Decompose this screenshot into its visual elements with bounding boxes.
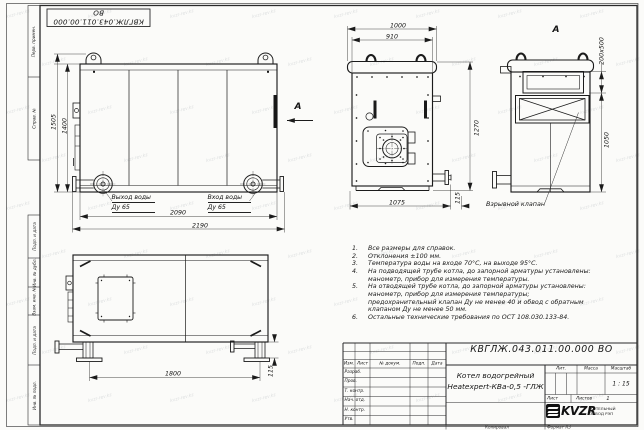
frame-label-podp-data-2: Подп. и дата <box>28 315 40 365</box>
explosion-valve <box>516 96 590 124</box>
rear-pipe-stub <box>493 172 512 189</box>
water-outlet-label: Выход воды Ду 65 <box>112 194 155 214</box>
dim-2090: 2090 <box>170 210 186 217</box>
drawing-lineart <box>0 0 644 430</box>
tb-sheets-label: Листов <box>576 396 592 401</box>
dim-115-side2: 115 <box>267 365 274 377</box>
sight-hole <box>366 113 373 120</box>
frame-label-perv-primen: Перв. примен. <box>28 6 40 78</box>
tb-row-tkontr: Т. контр. <box>345 390 365 394</box>
explosion-valve-label: Взрывной клапан <box>486 200 545 208</box>
bottom-pipes <box>55 341 255 353</box>
tb-col-izm: Изм. <box>344 362 354 367</box>
tb-col-data: Дата <box>431 362 442 367</box>
frame-label-podp-data-1: Подп. и дата <box>28 215 40 258</box>
kvzr-logo-icon <box>546 404 560 418</box>
boiler-side-view <box>54 53 313 233</box>
side-seal-strip <box>274 95 278 128</box>
access-panel <box>96 275 136 323</box>
corner-marks <box>80 261 261 336</box>
dim-1505: 1505 <box>50 114 57 130</box>
water-outlet-flange <box>73 171 117 197</box>
frame-label-inv-dubl: Инв. № дубл. <box>28 258 40 287</box>
rear-view-dimensions <box>584 63 607 192</box>
dim-2190: 2190 <box>192 222 208 229</box>
louver-window <box>523 72 584 94</box>
dim-115-front: 115 <box>454 192 461 204</box>
format-label: Формат А3 <box>547 425 571 430</box>
front-pipe-stub <box>433 171 452 185</box>
tb-sheets-value: 1 <box>606 396 609 402</box>
water-outlet-text: Выход воды <box>112 194 155 203</box>
company-name-line2: ЗАВОД РЭП <box>590 411 616 416</box>
tb-row-nachotd: Нач. отд. <box>345 399 366 403</box>
copied-label: Копировал <box>485 425 509 430</box>
technical-notes: 1.Все размеры для справок. 2.Отклонения … <box>347 245 631 322</box>
tb-lit-label: Лит. <box>556 367 566 372</box>
dim-1050: 1050 <box>603 132 610 148</box>
tb-row-razrab: Разраб. <box>345 371 362 375</box>
dim-200x500: 200х500 <box>598 37 605 65</box>
tb-col-dokum: № докум. <box>379 362 400 367</box>
drawing-sheet: kvzr-rev.kzkvzr-rev.kzkvzr-rev.kzkvzr-re… <box>0 0 644 430</box>
view-a-arrow-label: А <box>295 102 302 112</box>
title-block-designation: КВГЛЖ.043.011.00.000 ВО <box>446 344 637 364</box>
tb-scale-label: Масштаб <box>611 367 631 372</box>
tb-col-podp: Подп. <box>412 362 425 367</box>
company-name: КОТЕЛЬНЫЙ ЗАВОД РЭП <box>590 406 616 417</box>
tb-row-utv: Утв. <box>345 418 354 422</box>
product-name-line2: Heatexpert-КВа-0,5 -ГЛЖ <box>447 382 544 391</box>
note-item: 3.Температура воды на входе 70°С, на вых… <box>347 260 631 268</box>
support-feet <box>77 342 270 362</box>
dim-1075: 1075 <box>389 199 405 206</box>
dim-1800: 1800 <box>165 370 181 377</box>
frame-label-sprav-no: Справ. № <box>28 77 40 160</box>
note-item: 4.На подводящей трубе котла, до запорной… <box>347 268 631 283</box>
dim-910: 910 <box>386 33 398 40</box>
tb-row-nkontr: Н. контр. <box>345 409 366 413</box>
water-outlet-dn: Ду 65 <box>112 204 155 213</box>
water-inlet-text: Вход воды <box>208 194 251 203</box>
product-name-line1: Котел водогрейный <box>447 371 544 380</box>
note-item: 1.Все размеры для справок. <box>347 245 631 253</box>
tb-col-list: Лист <box>357 362 368 367</box>
designation-stamp: КВГЛЖ.043.011.00.000 ВО <box>47 9 150 27</box>
frame-label-vzam-inv: Взам. инв. № <box>28 287 40 315</box>
frame-label-inv-podl: Инв. № подл. <box>28 365 40 425</box>
dim-1270: 1270 <box>474 120 481 136</box>
tb-row-prov: Пров. <box>345 380 358 384</box>
note-item: 5.На отводящей трубе котла, до запорной … <box>347 283 631 314</box>
tb-scale-value: 1 : 15 <box>612 381 629 388</box>
dim-1400: 1400 <box>61 118 68 134</box>
tb-mass-label: Масса <box>584 367 598 372</box>
burner-door <box>363 127 415 167</box>
tb-sheet-label: Лист <box>547 396 558 401</box>
dim-1000: 1000 <box>390 22 406 29</box>
boiler-rear-view-a <box>493 54 607 203</box>
note-item: 6.Остальные технические требования по ОС… <box>347 314 631 322</box>
water-inlet-dn: Ду 65 <box>208 204 251 213</box>
boiler-side-view-2 <box>55 255 279 381</box>
water-inlet-label: Вход воды Ду 65 <box>208 194 251 214</box>
view-a-title: А <box>553 25 560 35</box>
boiler-front-view <box>348 26 474 210</box>
